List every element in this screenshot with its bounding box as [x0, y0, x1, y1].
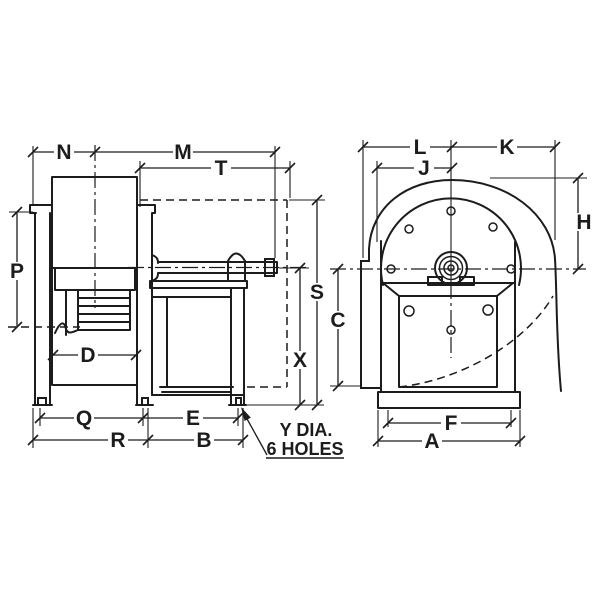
dim-label-x: X [293, 349, 307, 372]
bearing-pedestal [150, 281, 247, 405]
dim-label-m: M [174, 141, 192, 164]
hole-panel-right [483, 305, 493, 315]
leader-line [246, 417, 267, 455]
dim-label-t: T [215, 157, 228, 180]
hole-panel-left [404, 306, 414, 316]
note-hole-diameter-line2: 6 HOLES [266, 439, 343, 459]
hole-callout: Y DIA. 6 HOLES [241, 407, 344, 459]
dim-label-c: C [330, 309, 345, 332]
drawing-canvas: N M T P D Q E R B S X C L K J H F A Y DI… [0, 0, 600, 600]
hole-upper-right [489, 223, 497, 231]
note-hole-diameter-line1: Y DIA. [280, 420, 333, 440]
dim-label-h: H [576, 211, 591, 234]
front-view [330, 140, 586, 408]
dim-label-q: Q [76, 407, 92, 430]
dim-label-s: S [310, 281, 324, 304]
dim-label-n: N [56, 141, 71, 164]
side-view [8, 145, 307, 405]
side-view-outline [30, 177, 246, 405]
motor-block [55, 290, 130, 335]
dim-label-p: P [10, 260, 24, 283]
blower-dimension-drawing: N M T P D Q E R B S X C L K J H F A Y DI… [0, 0, 600, 600]
dimension-line-set [17, 147, 578, 441]
scroll-hidden-curve [399, 296, 553, 387]
dim-label-f: F [445, 412, 458, 435]
dim-label-r: R [110, 429, 125, 452]
front-view-outline [361, 180, 561, 408]
hole-upper-left [405, 225, 413, 233]
dim-label-a: A [424, 430, 439, 453]
dim-label-l: L [414, 136, 427, 159]
dim-label-e: E [186, 407, 200, 430]
dim-label-b: B [196, 429, 211, 452]
dim-label-d: D [80, 344, 95, 367]
dim-label-k: K [499, 136, 514, 159]
dim-label-j: J [418, 157, 430, 180]
